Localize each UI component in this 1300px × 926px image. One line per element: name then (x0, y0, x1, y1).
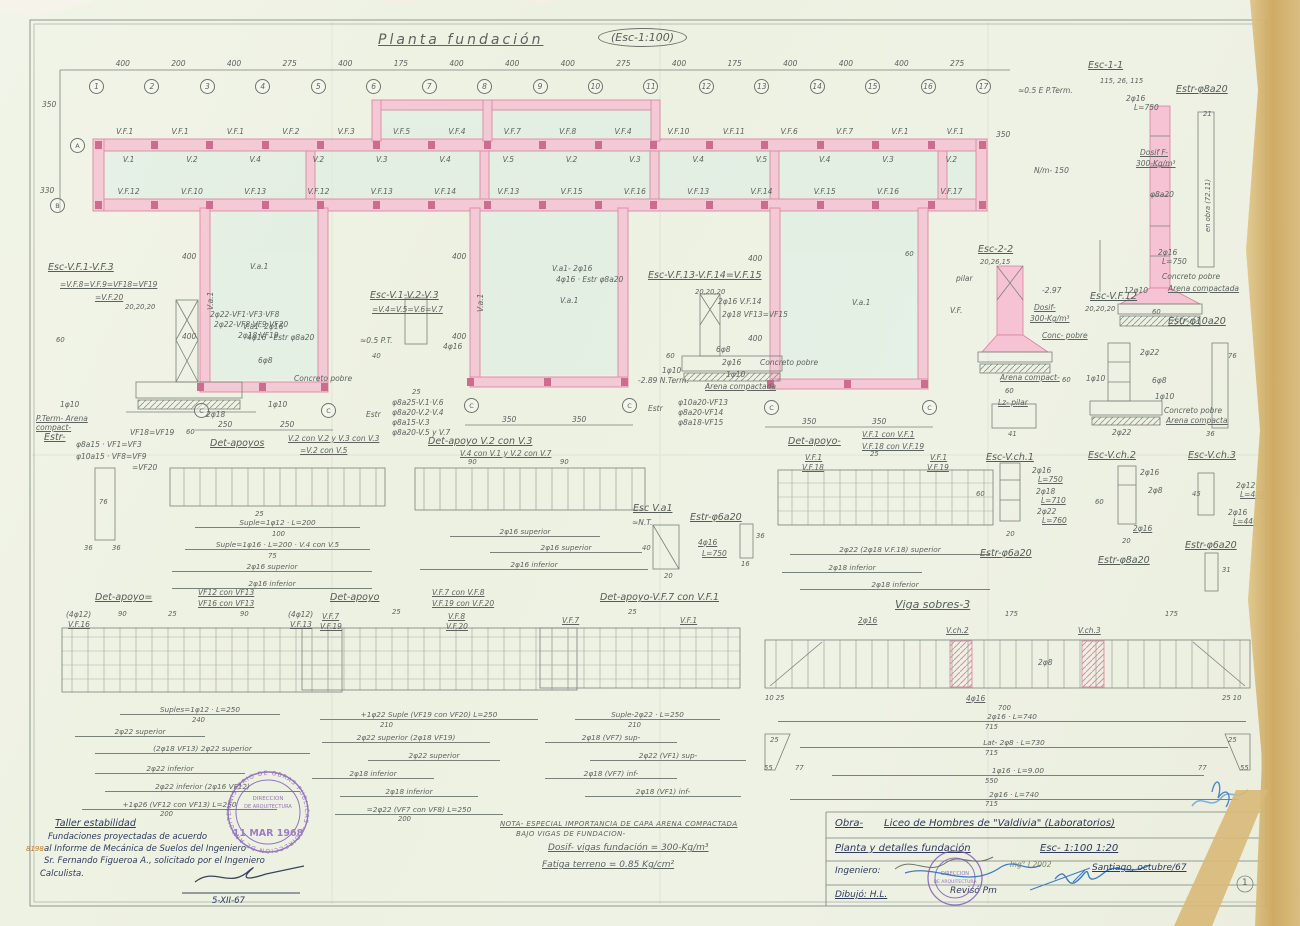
det5-sched4: 2φ18 inferior (312, 769, 434, 779)
esc11-estr-title: Estr-φ8a20 (1176, 84, 1228, 95)
s1-lean-concrete: Concreto pobre (294, 374, 352, 383)
det4-sched2: 2φ22 superior (75, 727, 205, 737)
s4-lean-concrete: Conc- pobre (1042, 331, 1088, 340)
viga-sched3: 1φ16 · L=9.00 (832, 766, 1204, 776)
det1-brace2: =V.2 con V.5 (300, 446, 347, 455)
esc11-width: 60 (1152, 308, 1161, 316)
wall-label-va1: V.a.1 (560, 296, 578, 305)
det4-title: Det-apoyo= (95, 592, 152, 603)
det6-beam-left: V.F.7 (562, 616, 579, 625)
s3-estr2: φ8a20-VF14 (678, 408, 723, 417)
s4-41: 41 (1008, 430, 1017, 438)
s3-sand: Arena compactada (705, 382, 776, 391)
titleblock-reviso: Revisó Pm (950, 886, 997, 897)
det4-sched5: 2φ22 inferior (2φ16 VF12) (105, 782, 300, 792)
s3-2f16: 2φ16 (722, 358, 741, 367)
viga-sched2: Lat- 2φ8 · L=730 (800, 738, 1228, 748)
det4-sched4: 2φ22 inferior (95, 764, 245, 774)
viga-e25: 25 (770, 736, 779, 744)
margin-code: 8198- (26, 845, 46, 853)
esc11-en-obra: en obra (72.11) (1204, 179, 1212, 232)
sheet-scale: (Esc-1:100) (598, 28, 687, 47)
esc11-title: Esc-1-1 (1088, 60, 1123, 71)
det4-brace2: VF16 con VF13 (198, 599, 254, 608)
s3-title: Esc-V.F.13-V.F.14=V.F.15 (648, 270, 762, 281)
det5-brace2: V.F.19 con V.F.20 (432, 599, 494, 608)
s5-sand: Arena compacta (1166, 416, 1228, 425)
s5-1f10: 1φ10 (1155, 392, 1174, 401)
esc11-dosif-value: 300-Kg/m³ (1136, 159, 1176, 168)
plan-top-dimensions: 4002004002754001754004004002754001754004… (95, 59, 985, 68)
det2-sched2: 2φ16 superior (490, 543, 642, 553)
s2-bars: 4φ16 (443, 342, 462, 351)
row-bubble-c: C (464, 398, 479, 413)
vch2-l1: 2φ16 (1140, 468, 1159, 477)
vch1-60: 60 (976, 490, 985, 498)
row-bubble-c: C (922, 400, 937, 415)
viga-col1-label: V.ch.2 (946, 626, 969, 635)
det3-sched3: 2φ18 inferior (800, 580, 990, 590)
vch1-l2b: L=710 (1041, 496, 1066, 505)
viga-e55: 55 (764, 764, 773, 772)
det4-25: 25 (168, 610, 177, 618)
esc11-350: 350 (996, 130, 1010, 139)
vch1-l1b: L=750 (1038, 475, 1063, 484)
row-bubble-c: C (764, 400, 779, 415)
s5-1f10: 1φ10 (1086, 374, 1105, 383)
vch2-l3: 2φ16 (1133, 524, 1152, 533)
s2-estr1: φ8a25-V.1·V.6 (392, 398, 444, 407)
det6-title: Det-apoyo-V.F.7 con V.F.1 (600, 592, 719, 603)
s4-dosif-value: 300-Kg/m³ (1030, 314, 1070, 323)
det3-brace1: V.F.1 con V.F.1 (862, 430, 915, 439)
row-bubble-c: C (321, 403, 336, 418)
s3-bars1: 2φ16 V.F.14 (718, 297, 762, 306)
det4-left-bars: (4φ12) (66, 610, 91, 619)
det4-240: 240 (192, 716, 205, 724)
s4-dims: 20,26,15 (980, 258, 1010, 266)
det5-sched6: =2φ22 (VF7 con VF8) L=250 (335, 805, 503, 815)
viga-sched4: 2φ16 · L=740 (790, 790, 1238, 800)
vch1-l2: 2φ18 (1036, 487, 1055, 496)
handnote-line3: al Informe de Mecánica de Suelos del Ing… (44, 844, 246, 854)
nota-fatiga: Fatiga terreno = 0.85 Kg/cm² (542, 860, 674, 871)
viga-bottom-bars: 4φ16 (966, 694, 985, 703)
estrtab-76: 76 (99, 498, 108, 506)
vch1-title: Esc-V.ch.1 (986, 452, 1034, 463)
titleblock-ingeniero: Ingeniero: (835, 866, 881, 877)
det1-100: 100 (272, 530, 285, 538)
wing-height-dim: 400 (748, 254, 762, 263)
s4-60: 60 (1005, 387, 1014, 395)
wing-height-dim: 400 (452, 252, 466, 261)
det6-sched4: 2φ18 (VF7) inf- (545, 769, 677, 779)
titleblock-obra: Liceo de Hombres de "Valdivia" (Laborato… (884, 818, 1115, 830)
wing-height-dim: 400 (748, 334, 762, 343)
det6-sched3: 2φ22 (VF1) sup- (590, 751, 746, 761)
plan-left-dim-330: 330 (40, 186, 54, 195)
estrtab-l3: φ10a15 · VF8=VF9 (76, 452, 147, 461)
det1-25: 25 (255, 510, 264, 518)
s5-bottom-bars: 2φ22 (1112, 428, 1131, 437)
handnote-title: Taller estabilidad (55, 818, 136, 829)
det6-sched1: Suple-2φ22 · L=250 (575, 710, 720, 720)
va1-nt: ≈N.T. (632, 518, 652, 527)
esc11-stirrup: φ8a20 (1150, 190, 1174, 199)
s5-estr-title: Estr-φ10a20 (1168, 316, 1226, 327)
s4-level: -2.97 (1042, 286, 1061, 295)
wing-height-dim: 400 (182, 252, 196, 261)
esc11-bar21: 21 (1203, 110, 1212, 118)
plan-top-beam-labels: V.F.1V.F.1V.F.1V.F.2V.F.3V.F.5V.F.4V.F.7… (97, 127, 983, 136)
s5-60: 60 (1062, 376, 1071, 384)
wing-height-dim: 400 (452, 332, 466, 341)
s3-60: 60 (666, 352, 675, 360)
s1-2f18: 2φ18 (206, 410, 225, 419)
wing3-dim: 350 (872, 417, 886, 426)
va1-16: 16 (741, 560, 750, 568)
blueprint-sheet: Planta fundación (Esc-1:100) 40020040027… (0, 0, 1300, 926)
vch3-l1: 2φ12 (1236, 481, 1255, 490)
det5-brace1: V.F.7 con V.F.8 (432, 588, 485, 597)
det5-sched1: +1φ22 Suple (VF19 con VF20) L=250 (320, 710, 538, 720)
s1-1f10: 1φ10 (268, 400, 287, 409)
viga-e25: 25 (1228, 736, 1237, 744)
det4-beam-right: V.F.13 (290, 620, 312, 629)
det2-title: Det-apoyo V.2 con V.3 (428, 436, 532, 447)
det2-sched1: 2φ16 superior (450, 527, 600, 537)
handnote-line2: Fundaciones proyectadas de acuerdo (48, 832, 207, 842)
vch1-l3b: L=760 (1042, 516, 1067, 525)
det5-beam-left2: V.F.19 (320, 622, 342, 631)
titleblock-ing-note: Ing° I 2002 (1010, 860, 1052, 869)
det1-75: 75 (268, 552, 277, 560)
handnote-date: 5-XII-67 (212, 896, 245, 906)
det5-200: 200 (398, 815, 411, 823)
vch3-l1b: L=440 (1240, 490, 1265, 499)
s2-estr3: φ8a15-V.3 (392, 418, 430, 427)
section-sketch-vf13 (682, 294, 782, 381)
vch2-title: Esc-V.ch.2 (1088, 450, 1136, 461)
det5-sched5: 2φ18 inferior (340, 787, 478, 797)
va1-title: Esc V.a1 (633, 503, 673, 514)
det5-210: 210 (380, 721, 393, 729)
nota-line1: NOTA- ESPECIAL IMPORTANCIA DE CAPA ARENA… (500, 820, 738, 828)
handnote-line5: Calculista. (40, 869, 84, 879)
vch3-45: 45 (1192, 490, 1201, 498)
det1-sched1: Suple=1φ12 · L=200 (195, 518, 360, 528)
wall-label-va1: V.a.1 (206, 292, 215, 310)
wing2-dim: 350 (502, 415, 516, 424)
det5-title: Det-apoyo (330, 592, 379, 603)
viga-e77: 77 (1198, 764, 1207, 772)
det6-beam-right: V.F.1 (680, 616, 697, 625)
esc11-bottom-bars-length: L=750 (1162, 257, 1187, 266)
vch1-l1: 2φ16 (1032, 466, 1051, 475)
det3-sched2: 2φ18 inferior (782, 563, 922, 573)
wall-label-va1: V.a.1 (476, 294, 485, 312)
det3-beam-left2: V.F.18 (802, 463, 824, 472)
vch3-estr: Estr-φ6a20 (1185, 540, 1237, 551)
det5-beam-right2: V.F.20 (446, 622, 468, 631)
det1-sched2: Suple=1φ16 · L=200 · V.4 con V.5 (185, 540, 370, 550)
esc11-pterm: ≈0.5 E P.Term. (1018, 86, 1073, 95)
sheet-title: Planta fundación (378, 32, 543, 49)
titleblock-escalas: Esc- 1:100 1:20 (1040, 843, 1118, 855)
s3-dims: 20,20,20 (695, 288, 725, 296)
s2-estr2: φ8a20-V.2·V.4 (392, 408, 444, 417)
plan-grid-bubbles: 1234567891011121314151617 (89, 79, 991, 94)
plan-bottom-beam-labels: V.F.12V.F.10V.F.13V.F.12V.F.13V.F.14V.F.… (97, 187, 983, 196)
va1-20: 20 (664, 572, 673, 580)
viga-bars: 2φ16 (858, 616, 877, 625)
det4-sched6: +1φ26 (VF12 con VF13) L=250 (82, 800, 277, 810)
plan-dim-60: 60 (905, 250, 914, 258)
det6-210: 210 (628, 721, 641, 729)
det5-beam-right: V.F.8 (448, 612, 465, 621)
vch2-estr: Estr-φ8a20 (1098, 555, 1150, 566)
row-bubble-b: B (50, 198, 65, 213)
s2-40: 40 (372, 352, 381, 360)
det4-sched1: Suples=1φ12 · L=250 (120, 705, 280, 715)
titleblock-dibujo: Dibujó: H.L. (835, 890, 887, 901)
s2-25: 25 (412, 388, 421, 396)
det3-25: 25 (870, 450, 879, 458)
wing1-dim: 250 (218, 420, 232, 429)
s1-bars2: 2φ22-VF8·VF9·VF20 (214, 320, 288, 329)
det3-sched1: 2φ22 (2φ18 V.F.18) superior (790, 545, 990, 555)
vch3-title: Esc-V.ch.3 (1188, 450, 1236, 461)
s3-estr3: φ8a18-VF15 (678, 418, 723, 427)
va1-40: 40 (642, 544, 651, 552)
s4-pilar: pilar (956, 274, 973, 283)
plan-left-dim-350: 350 (42, 100, 56, 109)
wall-label-va1: V.a.1 (852, 298, 870, 307)
titleblock-plano: Planta y detalles fundación (835, 843, 971, 855)
esc11-lean-concrete: Concreto pobre (1162, 272, 1220, 281)
esc11-top-bars: 2φ16 (1126, 94, 1145, 103)
esc11-top-bars-length: L=750 (1134, 103, 1159, 112)
det5-sched3: 2φ22 superior (368, 751, 500, 761)
s1-subtitle: =V.F.8=V.F.9=VF18=VF19 (60, 280, 157, 289)
vch1-20: 20 (1006, 530, 1015, 538)
s5-stirrups: 6φ8 (1152, 376, 1167, 385)
wing3-dim: 350 (802, 417, 816, 426)
viga-550: 550 (985, 777, 998, 785)
s1-dims: 20,20,20 (125, 303, 155, 311)
va1-estr: Estr-φ6a20 (690, 512, 742, 523)
s5-bar-76: 76 (1228, 352, 1237, 360)
s4-sand: Arena compact- (1000, 373, 1060, 382)
plan-inner-beam-labels: V.1V.2V.4V.2V.3V.4V.5V.2V.3V.4V.5V.4V.3V… (97, 155, 983, 164)
s4-dosif: Dosif- (1034, 303, 1056, 312)
esc11-sand: Arena compactada (1168, 284, 1239, 293)
viga-715: 715 (985, 723, 998, 731)
det2-90: 90 (560, 458, 569, 466)
s4-title: Esc-2-2 (978, 244, 1013, 255)
s4-lz-pilar: Lz- pilar (998, 398, 1028, 407)
s3-estr-label: Estr (648, 404, 663, 413)
s1-title: Esc-V.F.1-V.F.3 (48, 262, 114, 273)
esc11-dims: 115, 26, 115 (1100, 77, 1143, 85)
estrtab-l1: VF18=VF19 (130, 428, 174, 437)
s2-title: Esc-V.1-V.2-V.3 (370, 290, 439, 301)
s1-sand: P.Term- Arena compact- (36, 414, 108, 432)
s1-1f10: 1φ10 (60, 400, 79, 409)
det3-beam-left: V.F.1 (805, 453, 822, 462)
s3-1f10: 1φ10 (662, 366, 681, 375)
titleblock-obra-label: Obra- (835, 818, 863, 830)
vch2-l2: 2φ8 (1148, 486, 1163, 495)
s3-estr1: φ10a20-VF13 (678, 398, 728, 407)
s1-bars1: 2φ22-VF1·VF3·VF8 (210, 310, 279, 319)
estrtab-36: 36 (84, 544, 93, 552)
s5-dims: 20,20,20 (1085, 305, 1115, 313)
det6-sched5: 2φ18 (VF1) inf- (585, 787, 741, 797)
det3-beam-right: V.F.1 (930, 453, 947, 462)
det2-sched3: 2φ16 inferior (420, 560, 648, 570)
sheet-number: 1 (1242, 878, 1248, 889)
det5-25: 25 (392, 608, 401, 616)
s1-subtitle2: =V.F.20 (95, 293, 123, 302)
viga-715: 715 (985, 749, 998, 757)
det6-25: 25 (628, 608, 637, 616)
estrtab-l2: φ8a15 · VF1=VF3 (76, 440, 142, 449)
det4-90: 90 (240, 610, 249, 618)
s3-nterm: -2.89 N.Term. (638, 376, 689, 385)
wing1-dim: 250 (280, 420, 294, 429)
viga-title: Viga sobres-3 (895, 598, 970, 611)
row-bubble-c: C (622, 398, 637, 413)
s5-bar-36: 36 (1206, 430, 1215, 438)
det3-title: Det-apoyo- (788, 436, 841, 447)
viga-mid-bars: 2φ8 (1038, 658, 1053, 667)
s5-bars: 2φ22 (1140, 348, 1159, 357)
det1-sched3: 2φ16 superior (172, 562, 372, 572)
viga-e55: 55 (1240, 764, 1249, 772)
s5-lean-concrete: Concreto pobre (1164, 406, 1222, 415)
vch3-l2b: L=440 (1233, 517, 1258, 526)
viga-corner-tl: 10 25 (765, 694, 784, 702)
esc11-nm: N/m- 150 (1034, 166, 1069, 175)
viga-700: 700 (998, 704, 1011, 712)
esc11-dosif: Dosif F- (1140, 148, 1168, 157)
det1-title: Det-apoyos (210, 438, 264, 449)
det5-sched2: 2φ22 superior (2φ18 VF19) (322, 733, 490, 743)
det4-sched3: (2φ18 VF13) 2φ22 superior (95, 744, 310, 754)
row-bubble-a: A (70, 138, 85, 153)
s3-stirrups: 6φ8 (716, 345, 731, 354)
s4-vf: V.F. (950, 306, 962, 315)
s1-stirrups: 6φ8 (258, 356, 273, 365)
wing-rebar-note: V.a1- 2φ16 (552, 264, 592, 273)
s2-subtitle: =V.4=V.5=V.6=V.7 (372, 305, 443, 314)
s1-60: 60 (56, 336, 65, 344)
wing-height-dim: 400 (182, 332, 196, 341)
det4-90: 90 (118, 610, 127, 618)
s2-estr-label: Estr (366, 410, 381, 419)
vch2-60: 60 (1095, 498, 1104, 506)
viga-col2-label: V.ch.3 (1078, 626, 1101, 635)
wing-rebar-note: 4φ16 · Estr φ8a20 (556, 275, 623, 284)
vch2-20: 20 (1122, 537, 1131, 545)
s5-title: Esc-V.F.12 (1090, 291, 1137, 302)
va1-bars-length: L=750 (702, 549, 727, 558)
vch3-l2: 2φ16 (1228, 508, 1247, 517)
nota-dosif: Dosif- vigas fundación = 300-Kg/m³ (548, 843, 709, 854)
viga-715: 715 (985, 800, 998, 808)
det1-brace1: V.2 con V.2 y V.3 con V.3 (288, 434, 379, 443)
det4-200: 200 (160, 810, 173, 818)
det4-beam-left: V.F.16 (68, 620, 90, 629)
s1-bars3: 2φ18 VF19 (238, 331, 279, 340)
det5-beam-left: V.F.7 (322, 612, 339, 621)
det6-sched2: 2φ18 (VF7) sup- (545, 733, 677, 743)
vch1-estr: Estr-φ6a20 (980, 548, 1032, 559)
esc11-bottom-bars: 2φ16 (1158, 248, 1177, 257)
s2-pt: ≈0.5 P.T. (360, 336, 393, 345)
estrtab-title: Estr- (44, 432, 66, 443)
estrtab-l4: =VF20 (132, 463, 157, 472)
va1-bars: 4φ16 (698, 538, 717, 547)
viga-corner-tr: 25 10 (1222, 694, 1241, 702)
estrtab-36: 36 (112, 544, 121, 552)
va1-36: 36 (756, 532, 765, 540)
handnote-line4: Sr. Fernando Figueroa A., solicitado por… (44, 856, 265, 866)
wing2-dim: 350 (572, 415, 586, 424)
vch3-31: 31 (1222, 566, 1231, 574)
s3-lean-concrete: Concreto pobre (760, 358, 818, 367)
wall-label-va1: V.a.1 (250, 262, 268, 271)
s3-bars2: 2φ18 VF13=VF15 (722, 310, 788, 319)
titleblock-fecha: Santiago, octubre/67 (1092, 863, 1187, 874)
det4-right-bars: (4φ12) (288, 610, 313, 619)
det3-beam-right2: V.F.19 (927, 463, 949, 472)
viga-175: 175 (1005, 610, 1018, 618)
viga-175: 175 (1165, 610, 1178, 618)
viga-sched1: 2φ16 · L=740 (778, 712, 1246, 722)
det2-90: 90 (468, 458, 477, 466)
s1-base-width: 60 (186, 428, 195, 436)
det2-subtitle: V.4 con V.1 y V.2 con V.7 (460, 449, 551, 458)
det4-brace1: VF12 con VF13 (198, 588, 254, 597)
vch1-l3: 2φ22 (1037, 507, 1056, 516)
s3-1f10: 1φ10 (726, 370, 745, 379)
viga-e77: 77 (795, 764, 804, 772)
nota-line2: BAJO VIGAS DE FUNDACION- (516, 830, 626, 838)
